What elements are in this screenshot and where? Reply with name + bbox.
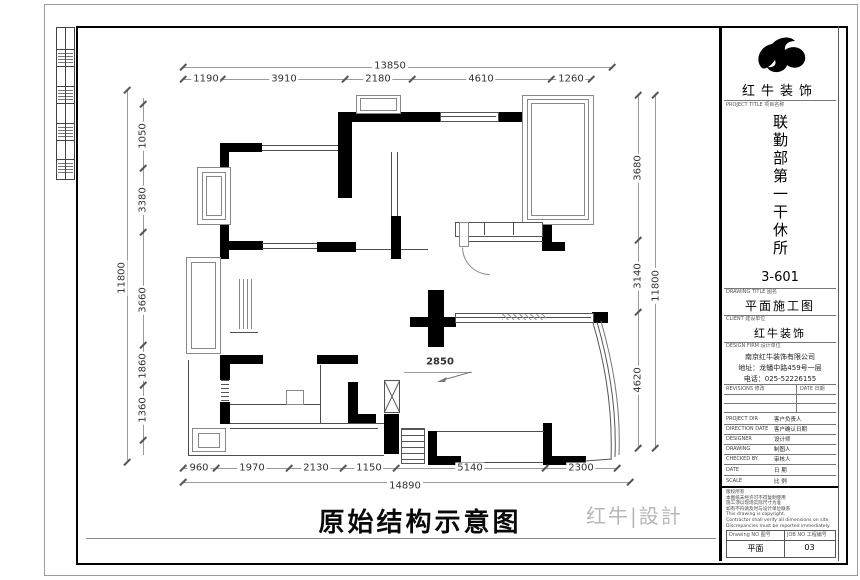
- tb-row-value: 客户负责人: [774, 415, 802, 423]
- wall-segment: [338, 112, 352, 198]
- project-name: 联勤部第一干休所: [770, 114, 791, 270]
- tb-row-value: 日 期: [774, 466, 787, 474]
- revisions-col1: REVISIONS 修改: [726, 386, 765, 392]
- wall-segment: [384, 414, 399, 454]
- door-window-grid: [401, 428, 425, 464]
- dim-label: 2300: [566, 463, 595, 474]
- dim-label: 960: [187, 463, 210, 474]
- dim-tick: [608, 63, 615, 70]
- tb-row-value: 制图人: [774, 445, 791, 453]
- dim-label-bottom-overall: 14890: [387, 481, 423, 492]
- title-block: 红牛装饰 PROJECT TITLE 项目名称 联勤部第一干休所 3-601 D…: [722, 26, 838, 561]
- wall-line: [391, 152, 392, 216]
- wall-line: [401, 249, 428, 250]
- closet-divider: [513, 222, 514, 235]
- tb-row-label: DESIGNER: [726, 436, 752, 442]
- wall-segment: [348, 414, 376, 423]
- dim-label: 3660: [138, 285, 149, 314]
- dim-label: 1970: [237, 463, 266, 474]
- tb-divider: [724, 100, 836, 101]
- window-hatch: [502, 314, 546, 320]
- wall-line: [262, 248, 317, 249]
- wall-line: [188, 360, 189, 455]
- revisions-row-line: [724, 394, 836, 395]
- dim-label: 2180: [363, 74, 392, 85]
- wall-line: [460, 241, 543, 242]
- dim-label: 1860: [138, 351, 149, 380]
- dim-label-left-overall: 11800: [117, 260, 128, 296]
- tb-thick-divider: [722, 486, 838, 488]
- tb-row-value: 审核人: [774, 455, 791, 463]
- dim-label: 1050: [138, 121, 149, 150]
- tb-row-label: DATE: [726, 467, 739, 473]
- cad-sheet: { "sheet": { "footer_title": "原始结构示意图", …: [0, 0, 860, 580]
- wall-line: [188, 455, 384, 456]
- leader-arrow: [435, 368, 475, 384]
- tb-row-label: DRAWING: [726, 446, 750, 452]
- balcony-outline: [360, 98, 397, 111]
- dim-label: 4620: [633, 365, 644, 394]
- dim-label: 3140: [633, 261, 644, 290]
- flue-shaft: [384, 380, 400, 413]
- wall-line: [230, 423, 384, 424]
- wall-segment: [220, 241, 263, 250]
- tb-row-label: CHECKED BY: [726, 456, 758, 462]
- closet-divider: [484, 222, 485, 235]
- dim-label-top-overall: 13850: [372, 61, 408, 72]
- dim-label: 1360: [138, 395, 149, 424]
- unit-number: 3-601: [722, 270, 838, 285]
- number-box-line: [727, 540, 835, 541]
- dim-label: 4610: [466, 74, 495, 85]
- number-box: Drawing NO 图号 JOB NO 工程编号 平面 03: [726, 530, 836, 558]
- job-no-label: JOB NO 工程编号: [787, 532, 827, 538]
- wall-segment: [317, 242, 356, 252]
- firm-line: 地址：龙蟠中路459号一层: [722, 363, 838, 373]
- wall-line: [437, 431, 544, 432]
- window-mullion: [441, 116, 496, 117]
- dim-label: 3680: [633, 153, 644, 182]
- dim-label: 3910: [269, 74, 298, 85]
- tb-section-label: DRAWING TITLE 图名: [726, 289, 777, 295]
- dim-tick: [123, 458, 130, 465]
- tb-row-label: SCALE: [726, 478, 742, 484]
- balcony-outline: [531, 103, 585, 216]
- dim-tick: [587, 75, 594, 82]
- tb-row-value: 客户确认日期: [774, 425, 807, 433]
- wall-line: [262, 150, 338, 151]
- door-jamb: [459, 222, 469, 247]
- wall-line: [397, 152, 398, 216]
- tb-section-label: PROJECT TITLE 项目名称: [726, 102, 784, 108]
- drawing-footer-title: 原始结构示意图: [300, 502, 540, 539]
- curved-balcony-rail: [585, 315, 625, 467]
- dim-tick: [651, 444, 658, 451]
- door-swing-arc: [462, 247, 490, 275]
- dim-label: 3380: [138, 185, 149, 214]
- dim-tick: [626, 478, 633, 485]
- tb-row-value: 比 例: [774, 477, 787, 485]
- revisions-row-line: [724, 403, 836, 404]
- drawing-no-label: Drawing NO 图号: [729, 532, 771, 538]
- tb-row-line: [724, 464, 836, 465]
- wall-line: [230, 404, 320, 405]
- client-name: 红牛装饰: [722, 325, 838, 341]
- dim-label: 1150: [354, 463, 383, 474]
- dim-label: 2130: [301, 463, 330, 474]
- wall-segment: [391, 216, 401, 259]
- wall-line: [356, 249, 391, 250]
- window-bay: [191, 262, 216, 349]
- wall-segment: [428, 290, 444, 347]
- brand-logo-icon: [752, 34, 808, 78]
- tb-divider: [724, 384, 836, 385]
- firm-line: 南京红牛装饰有限公司: [722, 352, 838, 362]
- tb-section-label: CLIENT 建设单位: [726, 316, 765, 322]
- firm-line: 电话：025-52226155: [722, 374, 838, 384]
- interior-dim-label: 2850: [424, 357, 456, 368]
- drawing-no-value: 平面: [727, 543, 784, 554]
- tb-row-line: [724, 475, 836, 476]
- shaft-hatch: [239, 279, 253, 329]
- wall-segment: [220, 402, 230, 424]
- tb-row-value: 设计师: [774, 435, 791, 443]
- counter-step: [286, 390, 304, 405]
- wall-line: [320, 365, 321, 423]
- dim-label: 1260: [556, 74, 585, 85]
- notes-block: 版权所有 本图纸未经许可不得复制使用 施工须以现场实际尺寸为准 如有不符请及时与…: [726, 490, 836, 529]
- wall-segment: [543, 242, 565, 251]
- dim-label: 5140: [455, 463, 484, 474]
- dim-label-right-overall: 11800: [651, 268, 662, 304]
- tb-row-label: PROJECT DIR: [726, 416, 758, 422]
- note-line: Contractor shall verify all dimensions o…: [726, 518, 836, 524]
- window-opening: [440, 112, 499, 122]
- wall-line: [262, 145, 338, 146]
- wall-line: [230, 428, 378, 429]
- tb-row-label: DIRECTION DATE: [726, 426, 768, 432]
- drawing-title: 平面施工图: [722, 297, 838, 314]
- fixture: [198, 433, 220, 448]
- brand-watermark: 红牛|設計: [586, 500, 683, 529]
- brand-name: 红牛装饰: [722, 80, 838, 99]
- window-bay: [206, 176, 222, 216]
- revisions-row-line: [724, 412, 836, 413]
- dim-label: 1190: [191, 74, 220, 85]
- wall-line: [230, 332, 258, 333]
- wall-line: [262, 243, 317, 244]
- dim-tick: [634, 444, 641, 451]
- revisions-col2: DATE 日期: [800, 386, 825, 392]
- wall-segment: [220, 355, 263, 364]
- tb-section-label: DESIGN FIRM 设计单位: [726, 343, 781, 349]
- job-no-value: 03: [784, 543, 835, 552]
- wall-segment: [410, 317, 430, 327]
- window-hatch: [221, 380, 229, 402]
- wall-segment: [317, 355, 358, 364]
- revisions-divider: [796, 384, 797, 412]
- note-line: Discrepancies must be reported immediate…: [726, 524, 836, 530]
